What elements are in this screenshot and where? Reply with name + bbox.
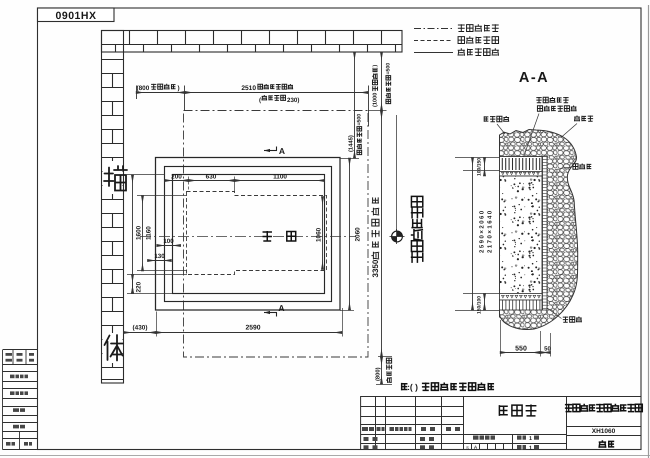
svg-text:(1000: (1000 [371,93,378,107]
svg-text:100/150: 100/150 [477,158,483,176]
svg-text:(430): (430) [133,325,148,332]
svg-text:2510: 2510 [241,85,256,92]
svg-text:A-A: A-A [519,70,549,86]
svg-text:(800: (800 [137,85,150,92]
svg-text:150/100: 150/100 [477,296,483,314]
svg-text:630: 630 [206,174,217,181]
svg-text:2590×2060: 2590×2060 [479,209,486,253]
svg-text:550: 550 [515,345,527,352]
svg-text:230): 230) [287,97,299,104]
svg-text:2170×1640: 2170×1640 [487,209,494,253]
svg-text:XH1060: XH1060 [592,428,616,435]
svg-text:=500: =500 [357,114,363,126]
svg-text:50: 50 [544,345,551,352]
svg-text:3350: 3350 [371,259,380,277]
svg-text:1: 1 [529,445,532,451]
svg-text:200: 200 [171,174,182,181]
svg-text:1060: 1060 [315,227,322,242]
svg-text:A: A [279,146,285,156]
svg-text:): ) [178,85,180,92]
svg-text:): ) [371,65,378,67]
svg-text:1600: 1600 [136,225,143,240]
svg-text:1100: 1100 [273,174,287,181]
svg-text:(1445): (1445) [347,135,354,152]
svg-text:1160: 1160 [146,226,153,240]
svg-text:130: 130 [154,253,165,260]
svg-text:A: A [278,303,284,313]
svg-text:2060: 2060 [354,227,361,242]
svg-text:2590: 2590 [245,325,260,332]
svg-text:0901HX: 0901HX [56,10,97,22]
svg-text:=500: =500 [386,63,392,75]
svg-text:220: 220 [136,281,143,292]
svg-text:(800): (800) [375,367,382,381]
svg-text:1: 1 [529,436,532,442]
svg-text:100: 100 [163,238,174,245]
svg-text::( ): :( ) [407,382,418,392]
